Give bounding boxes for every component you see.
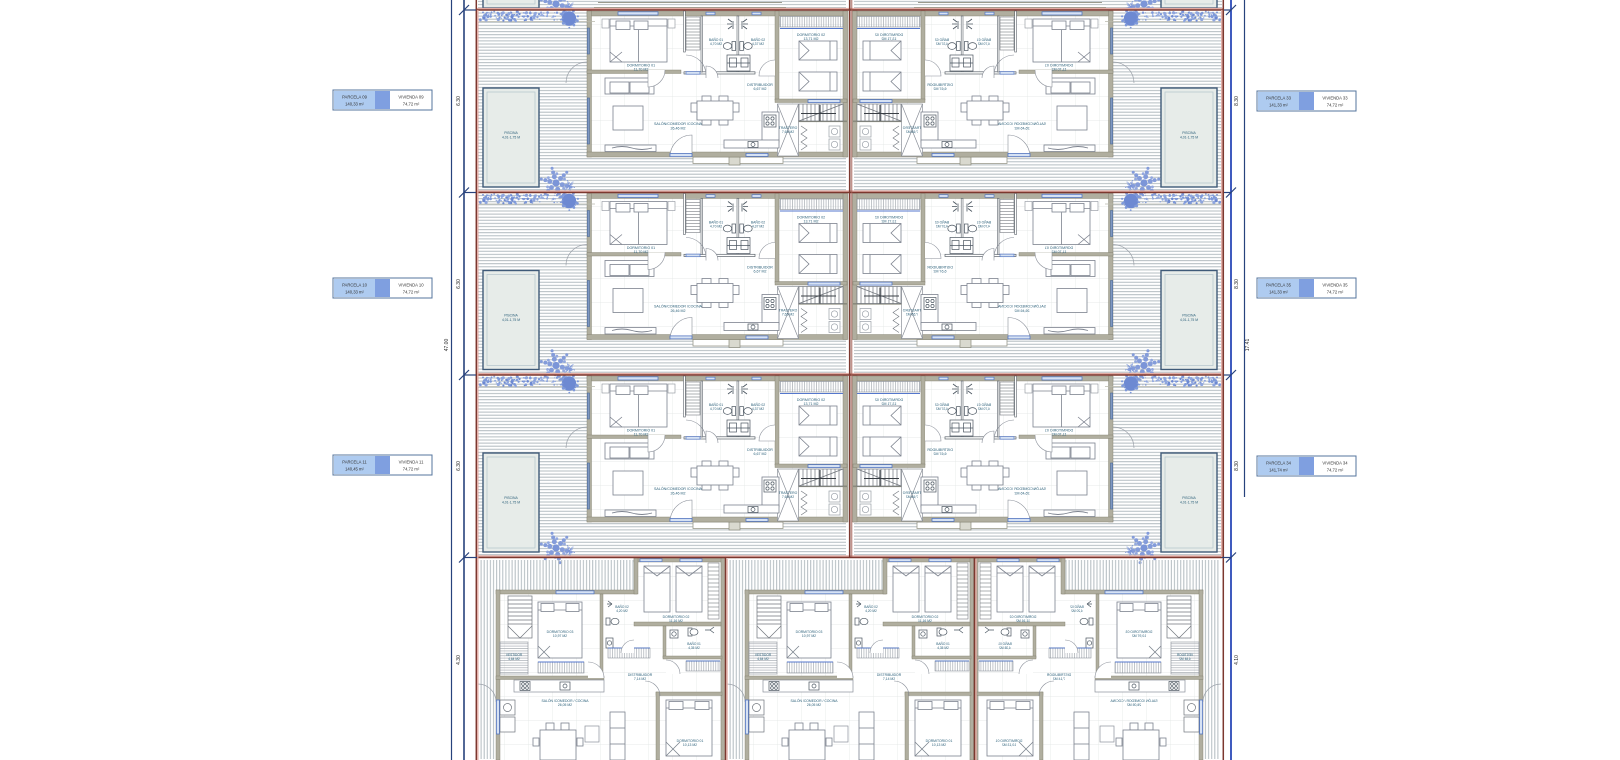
svg-text:74,72 m²: 74,72 m² <box>1327 103 1344 108</box>
svg-text:74,72 m²: 74,72 m² <box>403 290 420 295</box>
svg-text:17.41: 17.41 <box>1245 339 1251 352</box>
svg-text:PISCINA: PISCINA <box>504 131 518 135</box>
svg-text:74,72 m²: 74,72 m² <box>1327 290 1344 295</box>
svg-text:PISCINA: PISCINA <box>1182 314 1196 318</box>
svg-text:140,45 m²: 140,45 m² <box>345 467 364 472</box>
svg-text:VIVIENDA 35: VIVIENDA 35 <box>1322 283 1348 288</box>
svg-text:4.30: 4.30 <box>456 655 462 665</box>
svg-text:PISCINA: PISCINA <box>504 314 518 318</box>
svg-text:PARCELA 35: PARCELA 35 <box>1266 283 1291 288</box>
svg-text:4,01-1,75 M: 4,01-1,75 M <box>502 318 520 322</box>
svg-text:PARCELA 11: PARCELA 11 <box>342 460 367 465</box>
svg-text:140,33 m²: 140,33 m² <box>345 290 364 295</box>
svg-text:74,72 m²: 74,72 m² <box>403 102 420 107</box>
svg-text:PISCINA: PISCINA <box>504 496 518 500</box>
svg-text:6.30: 6.30 <box>456 461 462 471</box>
svg-text:141,74 m²: 141,74 m² <box>1269 468 1288 473</box>
svg-text:8.30: 8.30 <box>1234 461 1240 471</box>
svg-text:6.30: 6.30 <box>456 96 462 106</box>
svg-text:VIVIENDA 09: VIVIENDA 09 <box>398 95 424 100</box>
svg-text:PISCINA: PISCINA <box>1182 131 1196 135</box>
svg-text:8.30: 8.30 <box>1234 279 1240 289</box>
svg-text:140,33 m²: 140,33 m² <box>345 102 364 107</box>
svg-text:141,33 m²: 141,33 m² <box>1269 290 1288 295</box>
svg-text:PARCELA 34: PARCELA 34 <box>1266 461 1291 466</box>
svg-text:PISCINA: PISCINA <box>1182 496 1196 500</box>
svg-text:VIVIENDA 33: VIVIENDA 33 <box>1322 96 1348 101</box>
svg-text:VIVIENDA 11: VIVIENDA 11 <box>399 460 424 465</box>
svg-text:6.30: 6.30 <box>456 279 462 289</box>
svg-text:74,72 m²: 74,72 m² <box>1327 468 1344 473</box>
svg-text:4,01-1,75 M: 4,01-1,75 M <box>502 136 520 140</box>
svg-text:47.00: 47.00 <box>444 339 450 352</box>
svg-text:4.10: 4.10 <box>1234 655 1240 665</box>
svg-text:74,72 m²: 74,72 m² <box>403 467 420 472</box>
svg-text:4,01-1,75 M: 4,01-1,75 M <box>1180 318 1198 322</box>
svg-text:4,01-1,75 M: 4,01-1,75 M <box>502 501 520 505</box>
svg-text:PARCELA 09: PARCELA 09 <box>342 95 367 100</box>
svg-text:VIVIENDA 34: VIVIENDA 34 <box>1322 461 1348 466</box>
svg-text:PARCELA 10: PARCELA 10 <box>342 283 367 288</box>
svg-text:PARCELA 33: PARCELA 33 <box>1266 96 1291 101</box>
svg-text:8.30: 8.30 <box>1234 96 1240 106</box>
svg-text:4,01-1,75 M: 4,01-1,75 M <box>1180 501 1198 505</box>
svg-text:VIVIENDA 10: VIVIENDA 10 <box>398 283 424 288</box>
svg-text:4,01-1,75 M: 4,01-1,75 M <box>1180 136 1198 140</box>
svg-text:141,33 m²: 141,33 m² <box>1269 103 1288 108</box>
